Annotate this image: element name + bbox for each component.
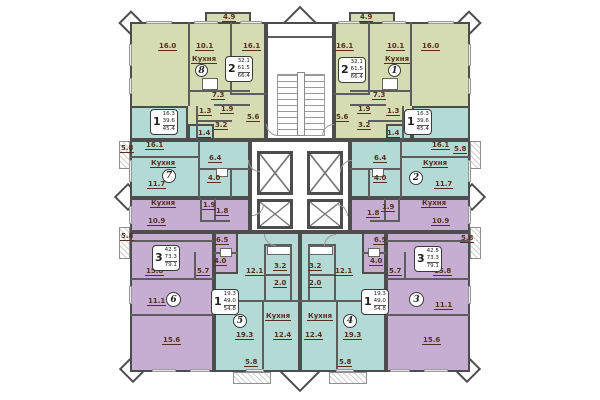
room-area-label: 19.3 — [235, 332, 254, 340]
window-mark — [129, 286, 132, 304]
area-living: 16.3 — [417, 111, 429, 118]
area-values: 19.349.054.8 — [224, 291, 236, 313]
window-mark — [338, 21, 360, 24]
room-area-label: 3.2 — [273, 263, 287, 271]
apartment-type-card-7: 116.339.645.4 — [150, 109, 178, 135]
wall-partition — [230, 168, 232, 198]
room-area-label: 6.4 — [373, 155, 387, 163]
room-area-label: 16.1 — [145, 142, 164, 150]
wall-partition — [398, 198, 400, 220]
area-total: 39.6 — [163, 118, 175, 125]
rooms-count: 1 — [407, 116, 415, 127]
fixture — [220, 248, 232, 257]
apartment-type-card-4: 119.349.054.8 — [361, 289, 389, 315]
wall-partition — [386, 278, 470, 280]
room-area-label: 1.8 — [366, 210, 380, 218]
room-area-label: 11.7 — [147, 181, 166, 189]
window-mark — [382, 21, 406, 24]
room-area-label: 1.8 — [215, 208, 229, 216]
window-mark — [194, 21, 218, 24]
room-area-label: 5.6 — [246, 114, 260, 122]
room-area-label: 11.1 — [434, 302, 453, 310]
room-area-label: 4.0 — [207, 175, 221, 183]
area-values: 19.349.054.8 — [374, 291, 386, 313]
room-area-label: 16.1 — [431, 142, 450, 150]
area-total: 61.5 — [238, 65, 250, 72]
area-values: 42.573.379.1 — [427, 248, 439, 270]
apartment-number-marker-3: 3 — [409, 292, 424, 307]
fixture — [202, 78, 218, 90]
room-area-label: 16.1 — [335, 43, 354, 51]
room-area-label: 1.3 — [386, 108, 400, 116]
apartment-number-marker-4: 4 — [343, 314, 357, 328]
apartment-number-marker-1: 1 — [388, 64, 401, 77]
room-area-label: 2.0 — [273, 280, 287, 288]
kitchen-label: Кухня — [150, 160, 176, 168]
window-mark — [468, 160, 471, 182]
room-area-label: 5.8 — [460, 235, 474, 243]
room-area-label: 3.2 — [214, 122, 228, 130]
area-total_with_balcony: 54.8 — [374, 305, 386, 313]
room-area-label: 3.2 — [357, 122, 371, 130]
kitchen-label: Кухня — [422, 160, 448, 168]
room-area-label: 6.5 — [373, 237, 387, 245]
room-area-label: 10.1 — [386, 43, 405, 51]
area-living: 42.5 — [165, 247, 177, 254]
area-total: 73.3 — [427, 255, 439, 262]
area-living: 19.3 — [374, 291, 386, 298]
room-area-label: 5.7 — [196, 268, 210, 276]
room-area-label: 5.8 — [453, 146, 467, 154]
elevator-cross-icon — [260, 154, 290, 192]
window-mark — [468, 78, 471, 94]
wall-partition — [264, 244, 266, 302]
room-area-label: 7.3 — [372, 92, 386, 100]
wall-partition — [334, 93, 370, 95]
area-total: 73.3 — [165, 254, 177, 261]
room-area-label: 1.4 — [386, 130, 400, 138]
room-area-label: 16.1 — [242, 43, 261, 51]
kitchen-label: Кухня — [307, 313, 333, 321]
fixture — [309, 246, 333, 255]
apartment-type-card-1: 232.161.566.4 — [338, 57, 366, 83]
kitchen-label: Кухня — [150, 200, 176, 208]
balcony — [470, 141, 481, 169]
wall-partition — [368, 168, 370, 198]
room-area-label: 1.9 — [357, 106, 371, 114]
room-area-label: 12.1 — [334, 268, 353, 276]
room-area-label: 4.0 — [369, 258, 383, 266]
room-area-label: 16.0 — [158, 43, 177, 51]
wall-partition — [130, 278, 214, 280]
apartment-type-card-2: 116.339.645.4 — [404, 109, 432, 135]
room-area-label: 5.8 — [120, 145, 134, 153]
room-area-label: 5.6 — [335, 114, 349, 122]
wall-partition — [410, 22, 412, 106]
area-living: 42.5 — [427, 248, 439, 255]
room-area-label: 12.1 — [245, 268, 264, 276]
room-area-label: 6.4 — [208, 155, 222, 163]
area-total_with_balcony: 79.1 — [427, 262, 439, 270]
fixture — [368, 248, 380, 257]
area-total: 39.6 — [417, 118, 429, 125]
area-living: 19.3 — [224, 291, 236, 298]
area-total_with_balcony: 79.1 — [165, 261, 177, 269]
room-area-label: 12.4 — [304, 332, 323, 340]
room-area-label: 10.9 — [431, 218, 450, 226]
apartment-number-marker-8: 8 — [195, 64, 208, 77]
rooms-count: 2 — [341, 64, 349, 75]
room-area-label: 4.0 — [213, 258, 227, 266]
room-area-label: 10.1 — [195, 43, 214, 51]
balcony — [329, 372, 367, 384]
rooms-count: 2 — [228, 63, 236, 74]
room-area-label: 11.1 — [147, 298, 166, 306]
area-total: 49.0 — [224, 298, 236, 305]
window-mark — [129, 78, 132, 94]
room-area-label: 5.8 — [120, 233, 134, 241]
wall-partition — [402, 156, 470, 158]
room-area-label: 11.7 — [434, 181, 453, 189]
wall-partition — [368, 22, 370, 94]
room-area-label: 1.9 — [381, 204, 395, 212]
wall-partition — [264, 274, 292, 276]
room-area-label: 15.6 — [162, 337, 181, 345]
room-area-label: 5.7 — [388, 268, 402, 276]
wall-partition — [200, 220, 230, 222]
apartment-type-card-5: 119.349.054.8 — [211, 289, 239, 315]
apartment-type-card-8: 232.161.566.4 — [225, 56, 253, 82]
window-mark — [468, 44, 471, 66]
room-area-label: 10.9 — [147, 218, 166, 226]
wall-partition — [268, 36, 332, 38]
elevator-cross-icon — [260, 202, 290, 226]
window-mark — [129, 206, 132, 224]
area-living: 32.1 — [238, 58, 250, 65]
floor-plan: 4.916.010.1Кухня16.17.31.31.93.25.64.916… — [0, 0, 600, 400]
room-area-label: 2.0 — [308, 280, 322, 288]
rooms-count: 1 — [153, 116, 161, 127]
balcony — [233, 372, 271, 384]
fixture — [267, 246, 291, 255]
fixture — [382, 78, 398, 90]
wall-partition — [370, 220, 400, 222]
wall-partition — [386, 240, 470, 242]
room-area-label: 5.8 — [338, 359, 352, 367]
rooms-count: 3 — [417, 253, 425, 264]
window-mark — [190, 369, 210, 372]
area-values: 16.339.645.4 — [417, 111, 429, 133]
window-mark — [246, 369, 264, 372]
area-total_with_balcony: 54.8 — [224, 305, 236, 313]
room-area-label: 19.3 — [343, 332, 362, 340]
wall-partition — [230, 93, 266, 95]
wall-partition — [308, 274, 336, 276]
apartment-type-card-6: 342.573.379.1 — [152, 245, 180, 271]
wall-partition — [368, 120, 404, 122]
wall-partition — [188, 22, 190, 106]
room-area-label: 1.4 — [197, 130, 211, 138]
window-mark — [468, 206, 471, 224]
kitchen-label: Кухня — [265, 313, 291, 321]
area-total_with_balcony: 45.4 — [163, 125, 175, 133]
kitchen-label: Кухня — [384, 56, 410, 64]
wall-partition — [386, 314, 470, 316]
area-total_with_balcony: 45.4 — [417, 125, 429, 133]
room-area-label: 4.0 — [373, 175, 387, 183]
apartment-type-card-3: 342.573.379.1 — [414, 246, 442, 272]
room-area-label: 15.6 — [422, 337, 441, 345]
window-mark — [152, 369, 176, 372]
window-mark — [336, 369, 354, 372]
area-total_with_balcony: 66.4 — [351, 73, 363, 81]
rooms-count: 3 — [155, 252, 163, 263]
window-mark — [129, 160, 132, 182]
room-area-label: 12.4 — [273, 332, 292, 340]
area-values: 16.339.645.4 — [163, 111, 175, 133]
area-living: 32.1 — [351, 59, 363, 66]
apartment-number-marker-5: 5 — [233, 314, 247, 328]
elevator-shaft — [307, 151, 343, 195]
apartment-number-marker-6: 6 — [166, 292, 181, 307]
wall-partition — [262, 300, 264, 372]
room-area-label: 6.5 — [215, 237, 229, 245]
kitchen-label: Кухня — [421, 200, 447, 208]
apartment-number-marker-7: 7 — [162, 169, 176, 183]
room-area-label: 3.2 — [308, 263, 322, 271]
area-total: 49.0 — [374, 298, 386, 305]
wall-partition — [130, 240, 214, 242]
area-total: 61.5 — [351, 66, 363, 73]
window-mark — [390, 369, 410, 372]
window-mark — [468, 286, 471, 304]
area-values: 32.161.566.4 — [351, 59, 363, 81]
rooms-count: 1 — [364, 296, 372, 307]
wall-partition — [130, 156, 198, 158]
area-values: 42.573.379.1 — [165, 247, 177, 269]
room-area-label: 1.3 — [198, 108, 212, 116]
window-mark — [129, 44, 132, 66]
wall-partition — [404, 252, 406, 278]
window-mark — [146, 21, 172, 24]
room-area-label: 1.9 — [220, 106, 234, 114]
apartment-number-marker-2: 2 — [409, 171, 423, 185]
elevator-cross-icon — [310, 154, 340, 192]
zone-apt-6-upper — [130, 198, 250, 232]
wall-partition — [130, 314, 214, 316]
window-mark — [428, 21, 454, 24]
rooms-count: 1 — [214, 296, 222, 307]
room-area-label: 16.0 — [421, 43, 440, 51]
area-values: 32.161.566.4 — [238, 58, 250, 80]
kitchen-label: Кухня — [191, 56, 217, 64]
area-living: 16.3 — [163, 111, 175, 118]
room-area-label: 5.8 — [244, 359, 258, 367]
area-total_with_balcony: 66.4 — [238, 72, 250, 80]
room-area-label: 4.9 — [359, 14, 373, 22]
elevator-shaft — [257, 151, 293, 195]
room-area-label: 4.9 — [222, 14, 236, 22]
room-area-label: 7.3 — [211, 92, 225, 100]
window-mark — [240, 21, 262, 24]
window-mark — [424, 369, 448, 372]
staircase-stringer — [297, 72, 305, 136]
